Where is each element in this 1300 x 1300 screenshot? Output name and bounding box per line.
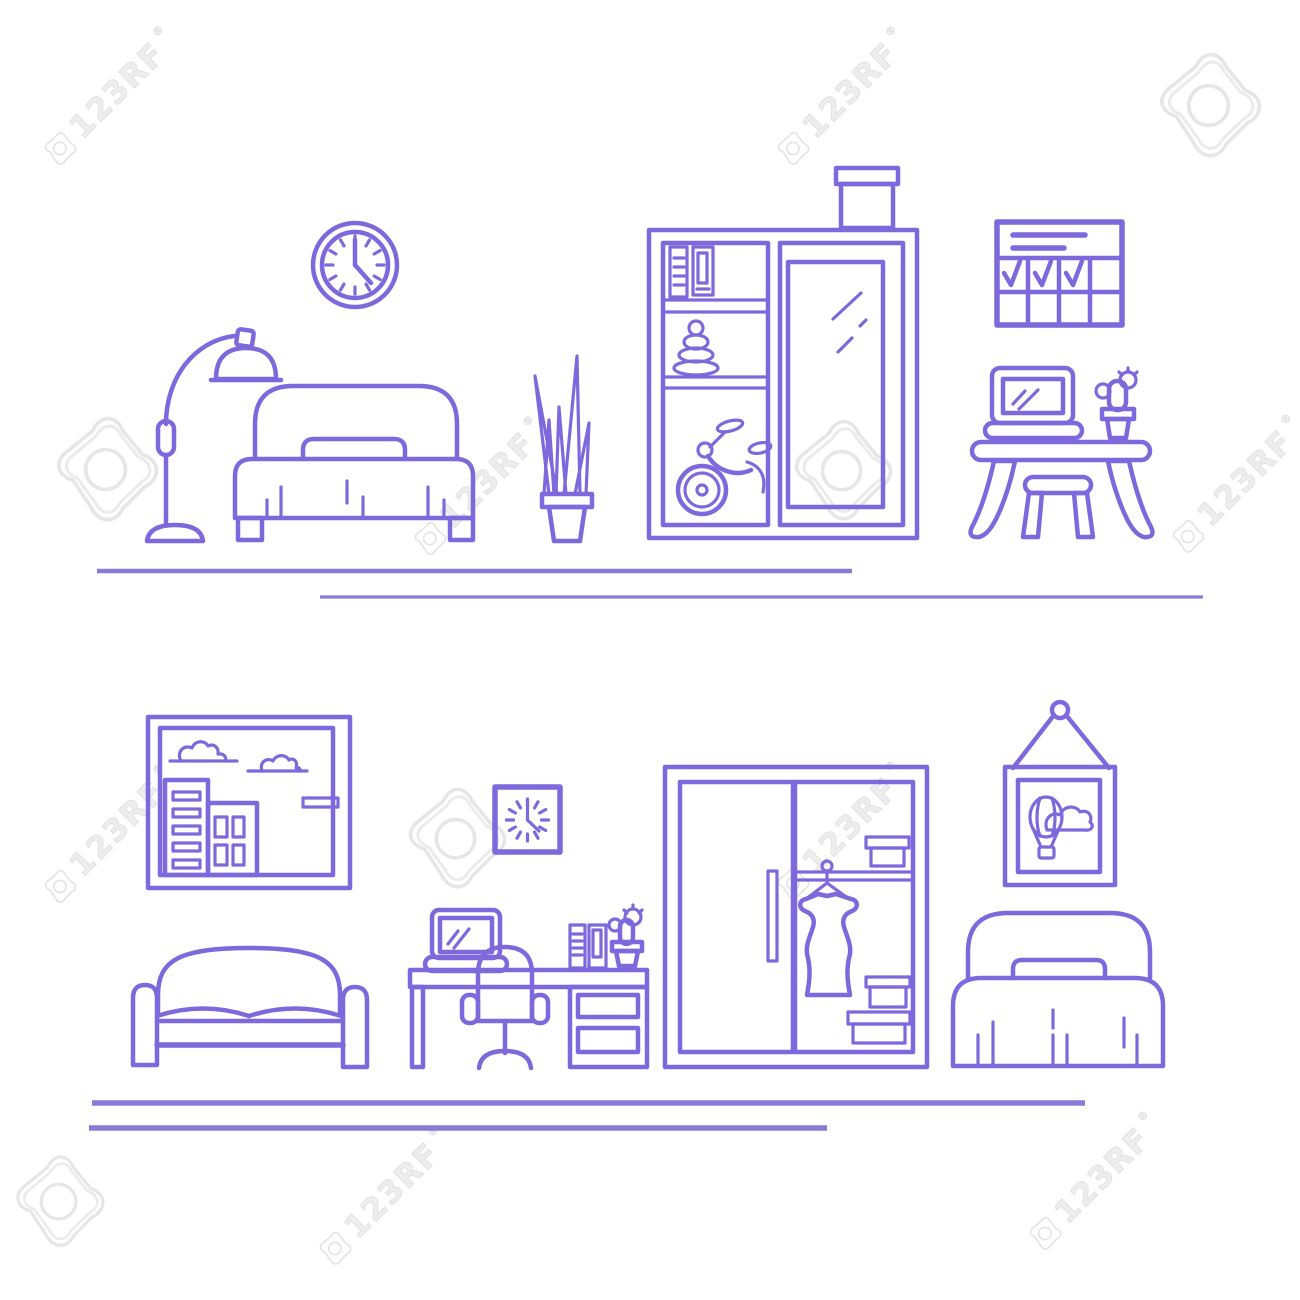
bed-icon <box>953 913 1163 1066</box>
wall-calendar-icon <box>997 222 1122 325</box>
laptop-icon <box>425 910 507 971</box>
square-wall-clock-icon <box>495 787 560 852</box>
hanging-balloon-picture-icon <box>1005 702 1115 885</box>
box-icon <box>866 977 910 1007</box>
city-picture-frame-icon <box>148 717 350 888</box>
pyramid-toy-icon <box>674 321 718 375</box>
box-icon <box>866 837 909 866</box>
scene-bottom <box>89 702 1163 1128</box>
mirror-shine <box>833 293 866 352</box>
laptop-icon <box>985 368 1082 438</box>
building-icon <box>208 803 257 875</box>
floor-lamp-icon <box>147 329 281 541</box>
desk-with-drawers-icon <box>410 970 647 1067</box>
round-wall-clock-icon <box>313 223 397 307</box>
blanket-creases <box>267 481 444 518</box>
mirror <box>788 262 883 507</box>
blanket-creases <box>978 1010 1137 1064</box>
sofa-icon <box>133 948 367 1067</box>
open-wardrobe-icon <box>665 767 927 1067</box>
clock-hour-hand <box>355 265 371 283</box>
stool-icon <box>1023 477 1093 537</box>
building-icon <box>165 780 208 875</box>
potted-plant-icon <box>535 356 592 541</box>
cloud-icon <box>170 742 237 761</box>
scene-top <box>97 168 1203 597</box>
wardrobe-shelf-unit-icon <box>649 230 917 538</box>
clock-hour-hand <box>528 820 540 831</box>
illustration-canvas: 123RF® 123RF® 123RF® 123RF® 123RF® 123RF… <box>0 0 1300 1300</box>
single-bed-icon <box>235 386 473 540</box>
storage-box-icon <box>836 168 898 228</box>
cloud-icon <box>248 756 307 771</box>
furniture-line-art <box>0 0 1300 1300</box>
box-icon <box>848 1012 910 1043</box>
door-handle <box>768 871 777 961</box>
calendar-checkmarks <box>1004 261 1082 285</box>
tricycle-icon <box>678 418 772 514</box>
desk-icon <box>971 442 1153 537</box>
folder-icons <box>670 247 713 297</box>
cactus-icon <box>609 905 642 966</box>
cactus-icon <box>1096 368 1137 438</box>
binders-icon <box>570 925 606 968</box>
